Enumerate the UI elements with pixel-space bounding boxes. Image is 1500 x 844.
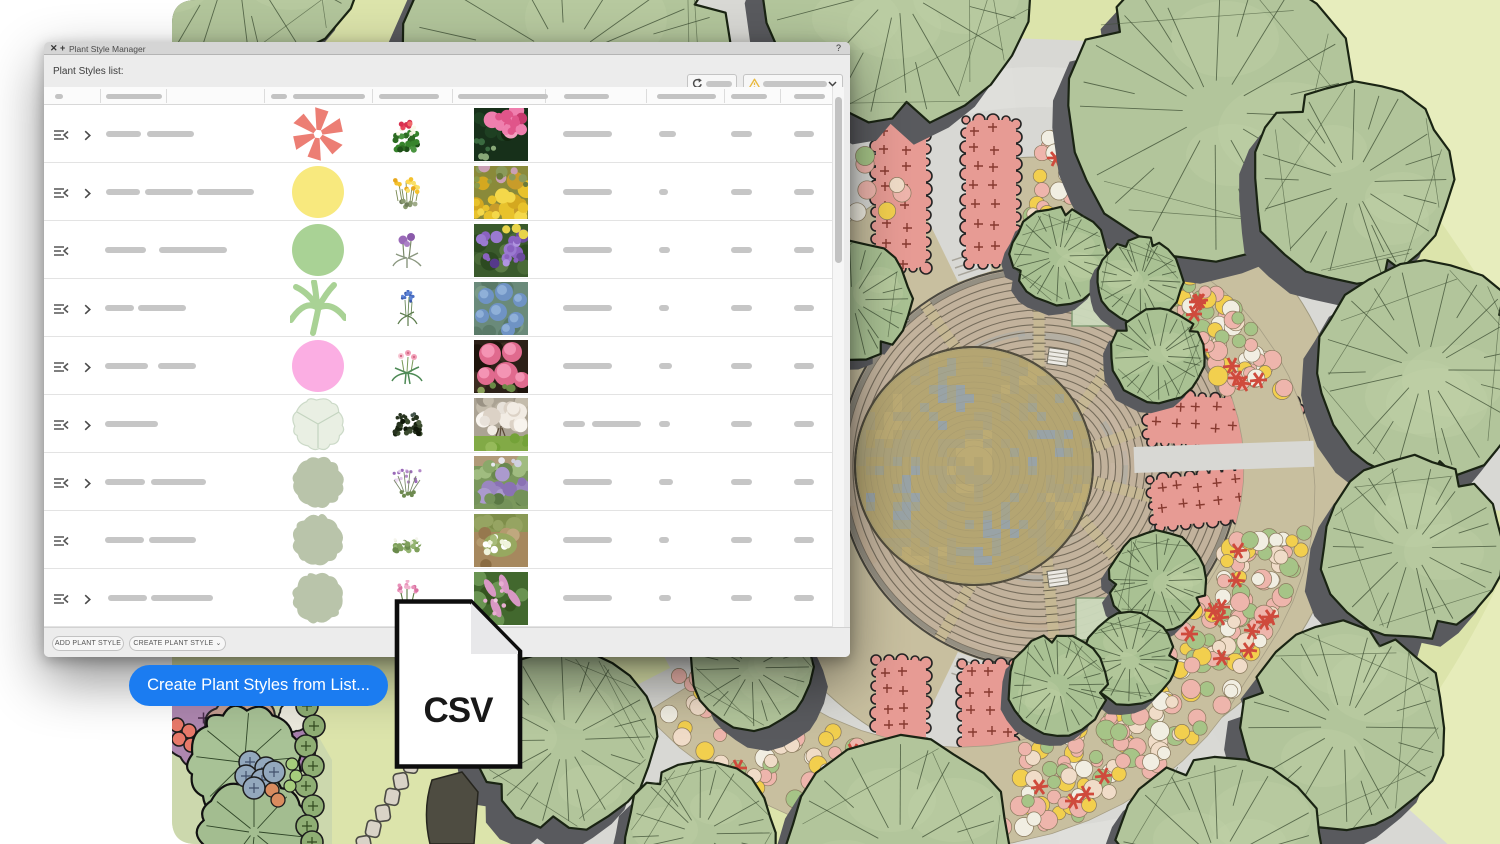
svg-text:CSV: CSV [424, 691, 495, 730]
